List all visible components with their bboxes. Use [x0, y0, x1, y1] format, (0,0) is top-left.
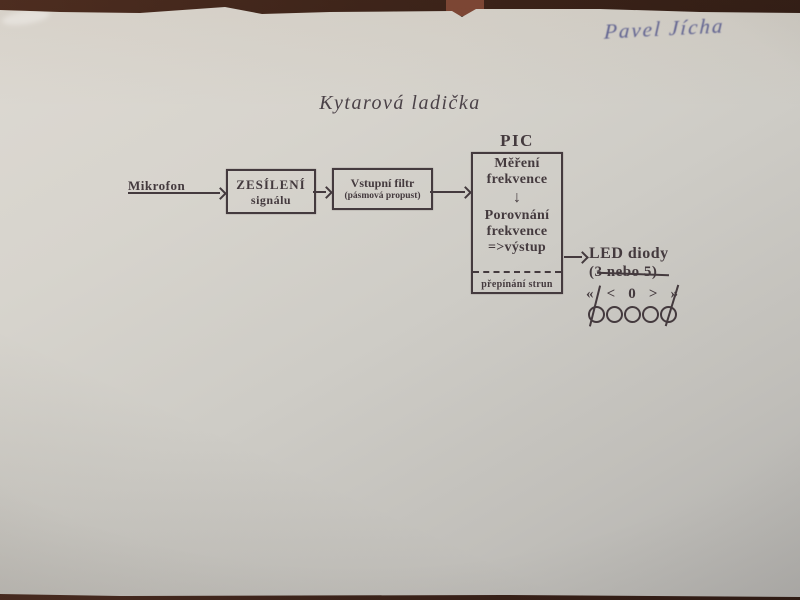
- photographed-content: Pavel Jícha Kytarová ladička Mikrofon ZE…: [0, 0, 800, 600]
- arrowhead-icon: [576, 251, 589, 264]
- led-circle-3: [624, 306, 641, 323]
- filter-label-line1: Vstupní filtr: [351, 176, 415, 190]
- symbol-left: <: [607, 286, 616, 303]
- symbol-center: 0: [628, 286, 636, 303]
- amplifier-label-line2: signálu: [251, 193, 291, 207]
- connector-mic-to-amplifier: [128, 192, 220, 194]
- amplifier-label-line1: ZESÍLENÍ: [236, 177, 305, 193]
- led-circles-row: [588, 306, 677, 323]
- arrowhead-icon: [320, 186, 333, 199]
- dashed-divider: [473, 271, 561, 273]
- led-label-line1: LED diody: [589, 245, 669, 263]
- filter-label-line2: (pásmová propust): [344, 190, 420, 202]
- pic-footer-label: přepínání strun: [473, 279, 561, 290]
- pic-box: Měření frekvence ↓ Porovnání frekvence =…: [471, 152, 563, 294]
- arrowhead-icon: [459, 186, 472, 199]
- input-filter-box: Vstupní filtr (pásmová propust): [332, 168, 433, 210]
- led-circle-4: [642, 306, 659, 323]
- pic-title: PIC: [471, 131, 563, 151]
- symbol-far-left: «: [586, 286, 594, 303]
- pic-step1-line2: frekvence: [487, 172, 548, 188]
- led-circle-2: [606, 306, 623, 323]
- page-title: Kytarová ladička: [300, 92, 500, 115]
- handwritten-name: Pavel Jícha: [603, 10, 789, 45]
- symbol-right: >: [649, 286, 658, 303]
- down-arrow-icon: ↓: [513, 188, 521, 208]
- pic-step2-line1: Porovnání: [485, 208, 550, 224]
- pic-step2-line2: frekvence: [487, 224, 548, 240]
- pic-step2-line3: =>výstup: [488, 240, 546, 256]
- pic-step1-line1: Měření: [494, 156, 539, 172]
- paper-sheet: Pavel Jícha Kytarová ladička Mikrofon ZE…: [0, 0, 800, 600]
- arrowhead-icon: [214, 187, 227, 200]
- amplifier-box: ZESÍLENÍ signálu: [226, 169, 316, 214]
